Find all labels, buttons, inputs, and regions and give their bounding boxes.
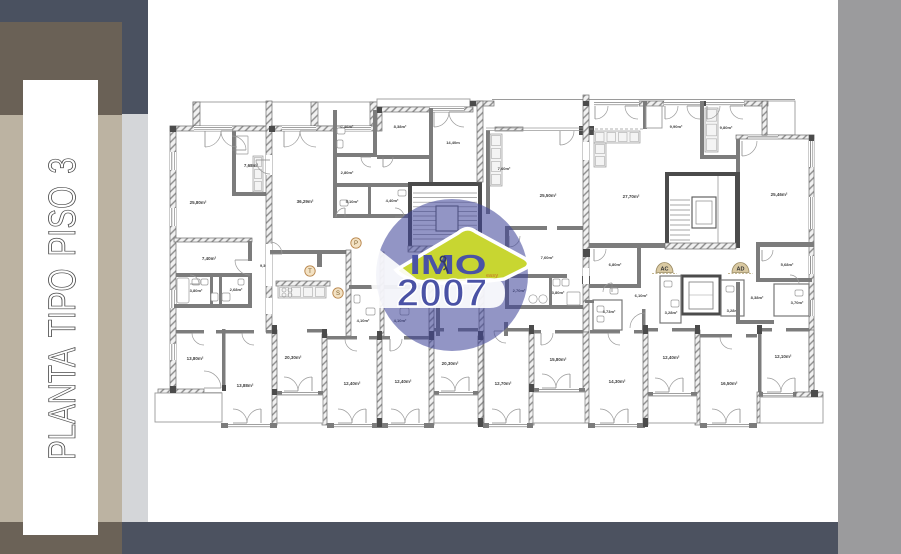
svg-text:5,68m²: 5,68m² — [781, 262, 794, 267]
svg-text:3,80m²: 3,80m² — [552, 290, 565, 295]
svg-text:4,10m²: 4,10m² — [357, 318, 370, 323]
svg-text:P: P — [354, 241, 358, 247]
svg-text:12,70m²: 12,70m² — [495, 381, 512, 386]
svg-text:3,80m²: 3,80m² — [190, 288, 203, 293]
svg-text:12,40m²: 12,40m² — [344, 381, 361, 386]
svg-text:12,40m²: 12,40m² — [663, 355, 680, 360]
svg-text:8,38m²: 8,38m² — [751, 295, 764, 300]
svg-text:7,60m²: 7,60m² — [541, 255, 554, 260]
svg-text:3,73m²: 3,73m² — [603, 309, 616, 314]
svg-text:27,70m²: 27,70m² — [623, 194, 640, 199]
svg-text:7,60m²: 7,60m² — [498, 166, 511, 171]
svg-text:easy: easy — [486, 273, 499, 279]
svg-text:12,10m²: 12,10m² — [775, 354, 792, 359]
svg-text:14,40m: 14,40m — [446, 140, 460, 145]
svg-text:20,30m²: 20,30m² — [285, 355, 302, 360]
svg-text:20,30m²: 20,30m² — [442, 361, 459, 366]
svg-text:9,90m²: 9,90m² — [670, 124, 683, 129]
svg-text:13,80m²: 13,80m² — [187, 356, 204, 361]
svg-text:2,80m²: 2,80m² — [341, 170, 354, 175]
svg-text:8,38m²: 8,38m² — [394, 124, 407, 129]
svg-text:15,80m²: 15,80m² — [550, 357, 567, 362]
svg-text:9,80m²: 9,80m² — [720, 125, 733, 130]
svg-text:7,40m²: 7,40m² — [202, 256, 217, 261]
svg-text:13,88m²: 13,88m² — [237, 383, 254, 388]
svg-text:36,29m²: 36,29m² — [297, 199, 314, 204]
svg-text:6,80m²: 6,80m² — [609, 262, 622, 267]
svg-text:2007: 2007 — [397, 272, 488, 315]
svg-text:T: T — [308, 269, 312, 275]
svg-text:12,40m²: 12,40m² — [395, 379, 412, 384]
svg-text:25,80m²: 25,80m² — [190, 200, 207, 205]
svg-text:6,10m²: 6,10m² — [635, 293, 648, 298]
svg-text:16,50m²: 16,50m² — [721, 381, 738, 386]
svg-text:2,68m²: 2,68m² — [230, 287, 243, 292]
svg-text:PLANTA TIPO PISO 3: PLANTA TIPO PISO 3 — [42, 157, 84, 460]
svg-text:3,70m²: 3,70m² — [791, 300, 804, 305]
svg-text:14,30m²: 14,30m² — [609, 379, 626, 384]
svg-text:25,50m²: 25,50m² — [540, 193, 557, 198]
svg-text:25,46m²: 25,46m² — [771, 192, 788, 197]
svg-text:4,40m²: 4,40m² — [386, 198, 399, 203]
svg-text:S: S — [336, 291, 340, 297]
svg-text:5,10m²: 5,10m² — [346, 199, 359, 204]
svg-text:AC: AC — [661, 267, 669, 273]
svg-text:3,28m²: 3,28m² — [665, 310, 678, 315]
svg-text:AD: AD — [737, 267, 745, 273]
